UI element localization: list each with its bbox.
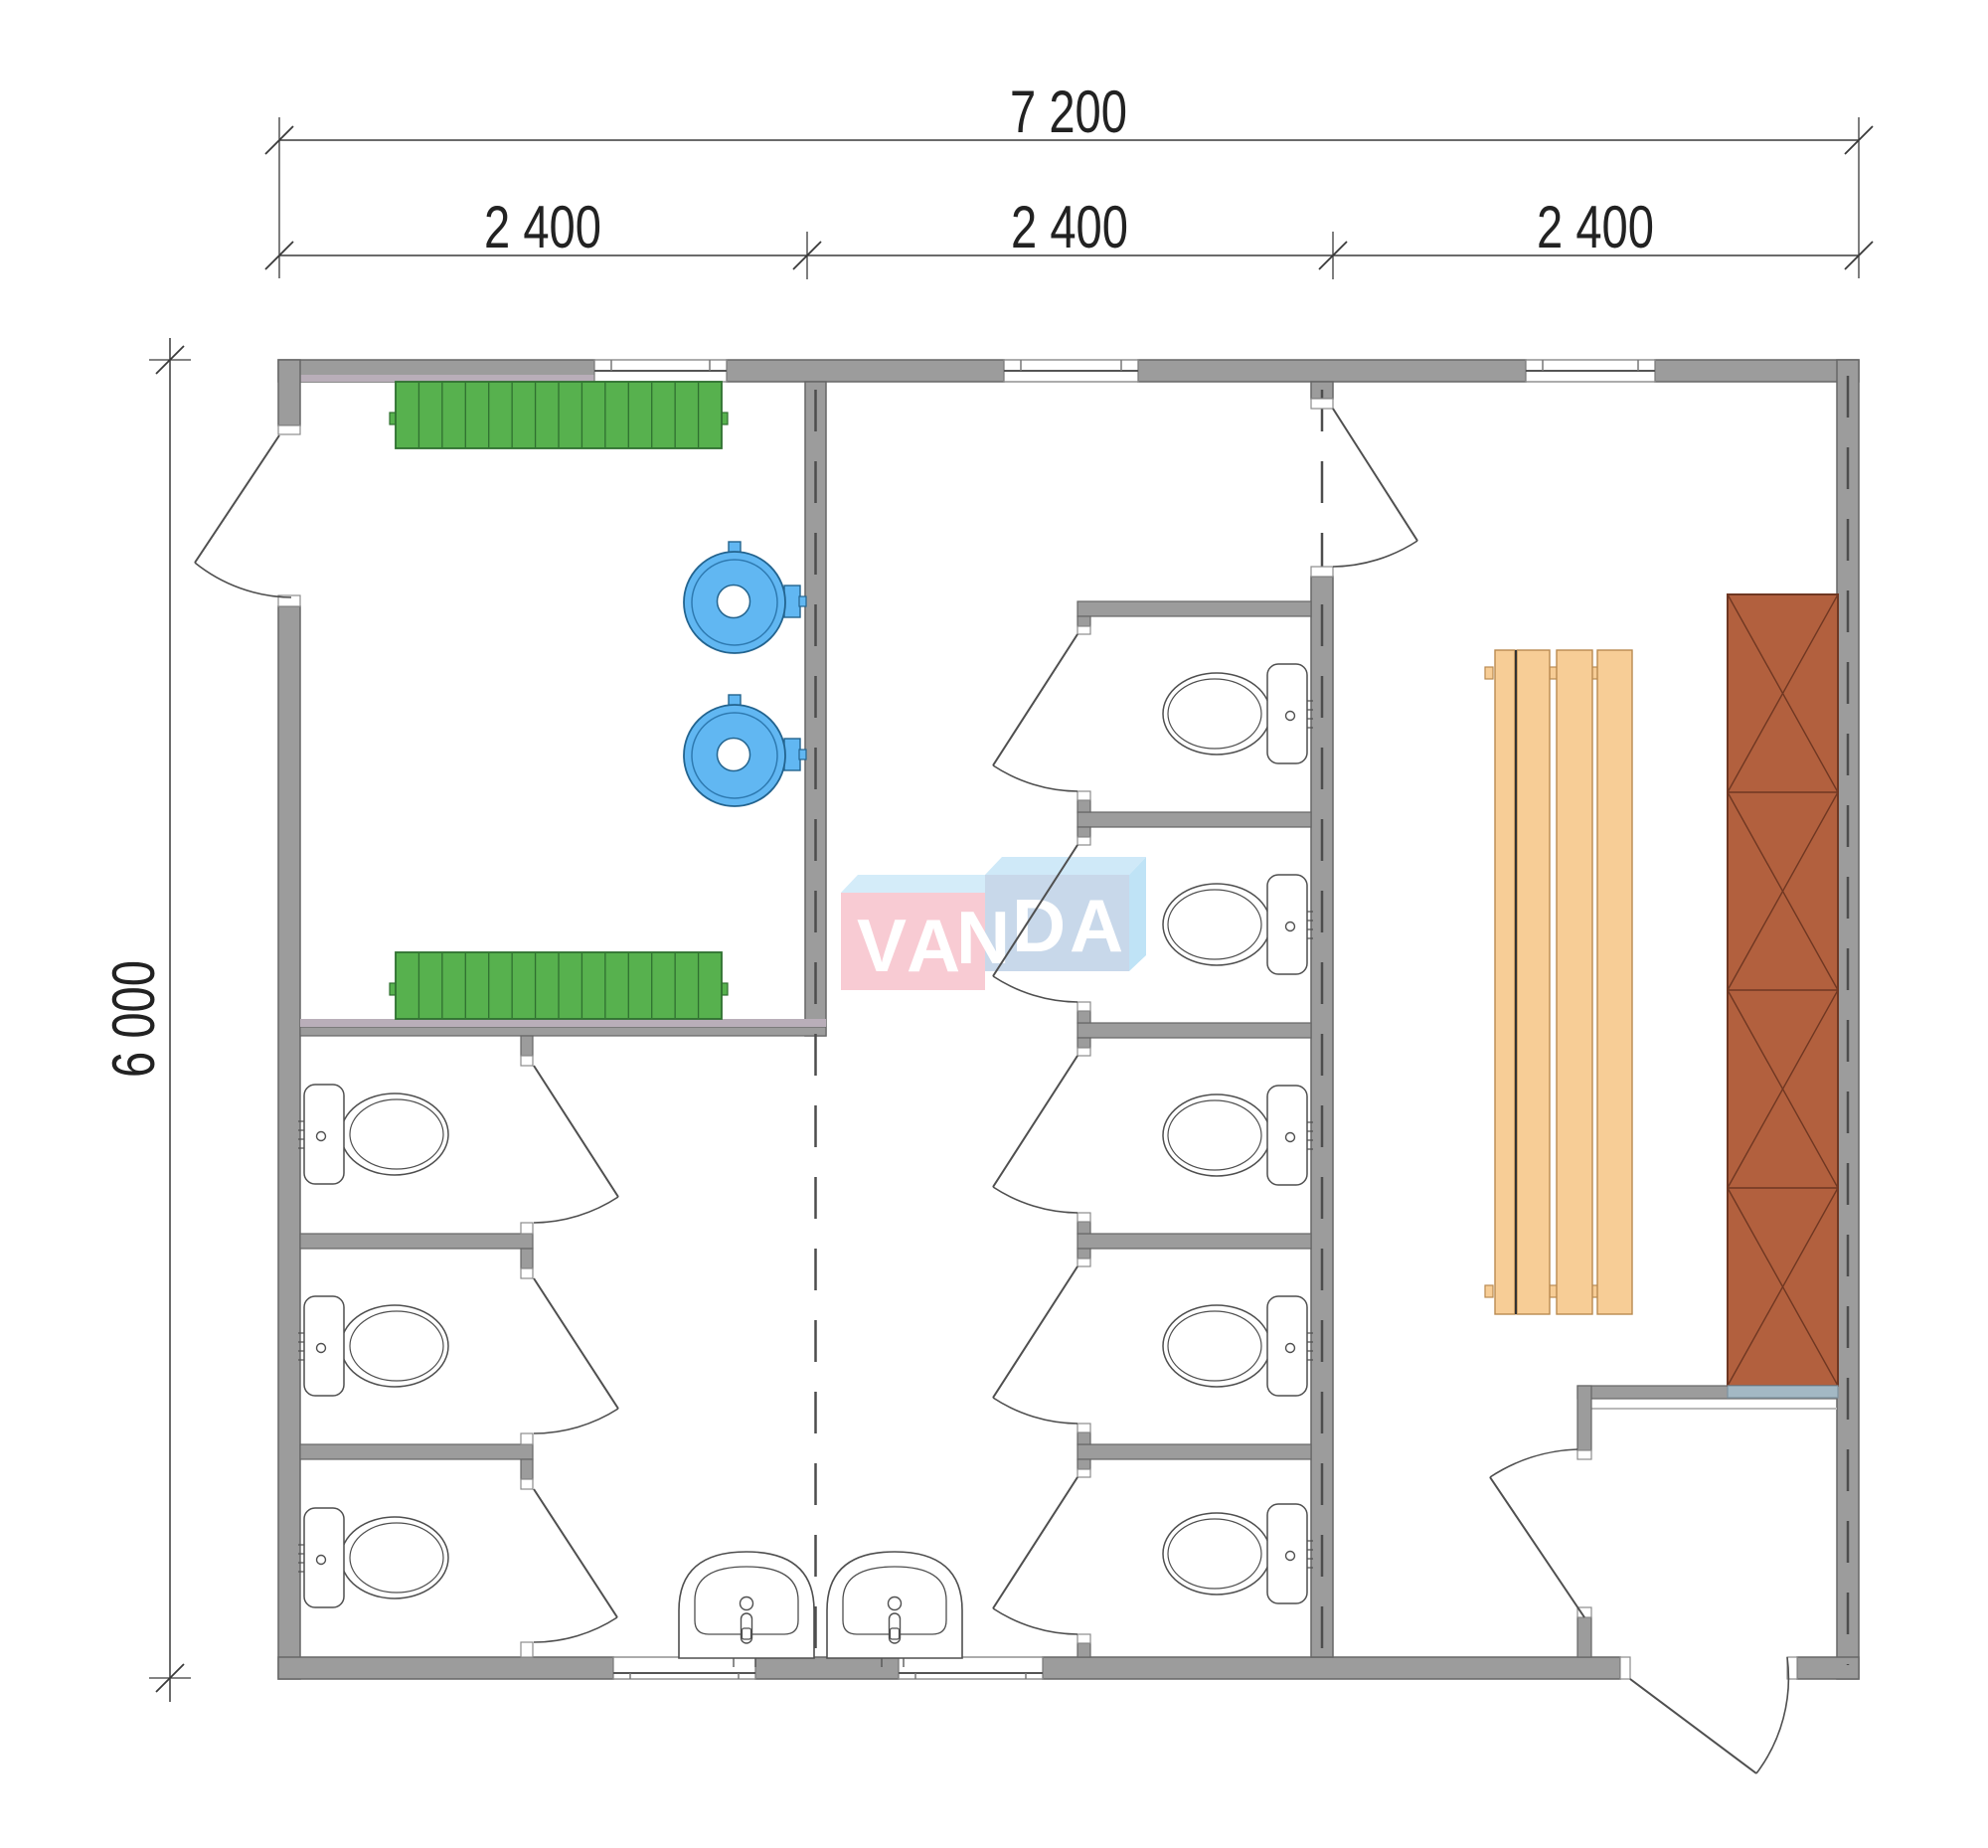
svg-text:V: V [857,904,907,987]
svg-text:6 000: 6 000 [100,960,167,1078]
svg-text:A: A [907,904,960,987]
svg-text:N: N [956,896,1010,979]
svg-text:2 400: 2 400 [1537,194,1654,260]
svg-text:D: D [1012,884,1066,967]
svg-text:A: A [1070,884,1123,967]
svg-text:2 400: 2 400 [1011,194,1128,260]
svg-text:7 200: 7 200 [1010,79,1127,145]
svg-text:2 400: 2 400 [484,194,601,260]
